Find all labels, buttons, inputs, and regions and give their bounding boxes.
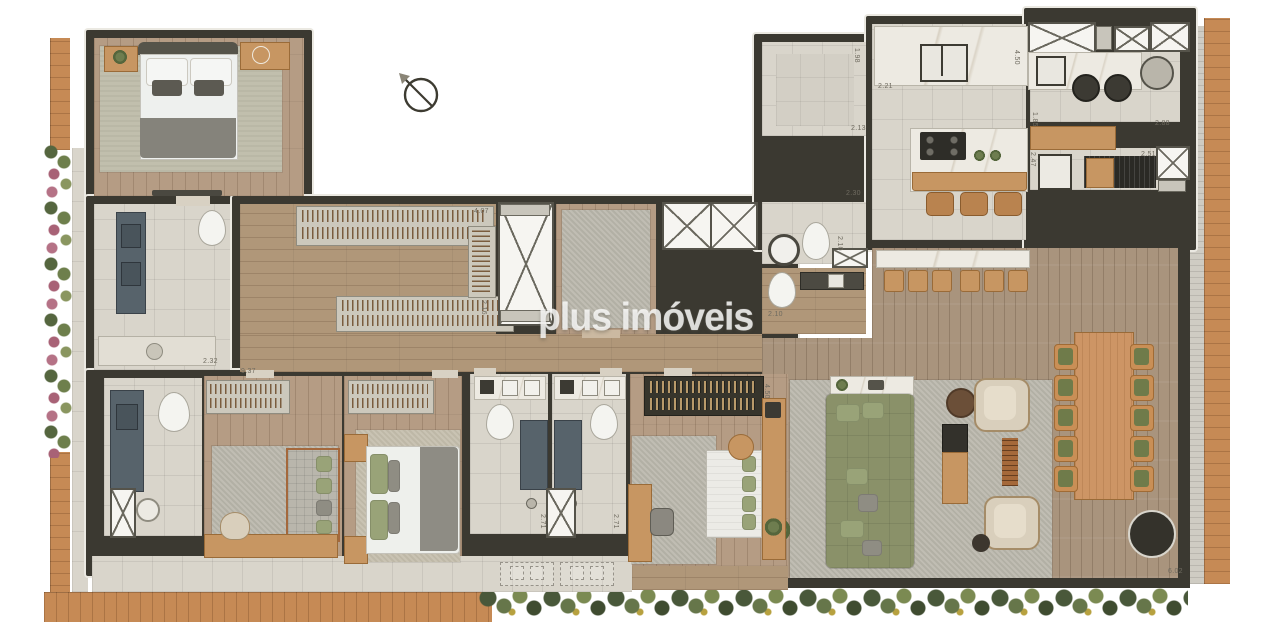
side-table-dark <box>972 534 990 552</box>
ghost-chair <box>530 566 544 580</box>
chair-cushion <box>1058 440 1073 457</box>
chair-cushion <box>1134 379 1149 396</box>
sink-basin <box>828 274 844 288</box>
daybed-pillow <box>742 496 756 512</box>
desk <box>628 484 652 562</box>
washbowl <box>136 498 160 522</box>
chair-cushion <box>1058 409 1073 426</box>
nightstand <box>344 434 368 462</box>
bed-pillow <box>388 460 400 492</box>
sink-basin <box>560 380 574 394</box>
ghost-chair <box>590 566 604 580</box>
dining-chair <box>1130 466 1154 492</box>
closet-hangers <box>210 384 284 394</box>
plant-pot <box>990 150 1001 161</box>
wood-frame-left-bottom <box>50 452 70 598</box>
shaft-cap <box>1096 26 1112 50</box>
armchair-cushion <box>994 504 1026 538</box>
dining-chair <box>1130 344 1154 370</box>
watermark: plus imóveis <box>538 296 788 340</box>
shower-door <box>110 488 136 538</box>
washbowl <box>768 234 800 266</box>
dining-chair <box>1054 466 1078 492</box>
plant-pot <box>836 379 848 391</box>
floor-vestibule-recess <box>776 54 854 126</box>
door-bedroom-1 <box>246 370 274 378</box>
duct-shaft <box>832 248 868 268</box>
closet-hangers <box>210 398 284 408</box>
duct-shaft <box>1156 146 1190 180</box>
decor-clock <box>252 46 270 64</box>
dining-chair <box>1054 405 1078 431</box>
closet-hangers <box>352 384 428 394</box>
sink-basin <box>604 380 620 396</box>
toilet <box>198 210 226 246</box>
daybed-pillow <box>316 500 332 516</box>
closet-hangers <box>302 227 486 239</box>
north-compass-icon <box>390 64 446 120</box>
island-base <box>912 172 1027 191</box>
sink-basin <box>121 224 141 248</box>
bar-stool <box>926 192 954 216</box>
wood-frame-bottom <box>44 592 492 622</box>
sofa-cushion <box>836 404 860 422</box>
sink-basin <box>116 404 138 430</box>
bar-stool <box>960 192 988 216</box>
closet-hangers <box>302 210 486 222</box>
shower-counter <box>520 420 548 490</box>
washer <box>1072 74 1100 102</box>
dining-chair <box>1054 436 1078 462</box>
daybed-pillow <box>316 478 332 494</box>
slat-bench <box>1002 438 1018 486</box>
chair-cushion <box>1134 409 1149 426</box>
sink-basin <box>582 380 598 396</box>
sofa-cushion <box>862 540 882 556</box>
elevator-cap <box>500 204 550 216</box>
closet-hangers <box>342 315 506 326</box>
stair-shaft <box>1028 22 1096 54</box>
breakfast-chair <box>984 270 1004 292</box>
sink-basin <box>480 380 494 394</box>
chair-cushion <box>1134 470 1149 487</box>
gourmet-sink <box>1038 154 1072 190</box>
door-bathroom-2 <box>474 368 496 376</box>
decor-tray <box>868 380 884 390</box>
bed-bench <box>152 190 222 196</box>
pouf <box>1128 510 1176 558</box>
bed-blanket <box>420 447 458 551</box>
door-bedroom-2 <box>432 370 458 378</box>
sink-basin <box>502 380 518 396</box>
shower-counter <box>554 420 582 490</box>
duct-shaft <box>1114 26 1150 52</box>
chair-cushion <box>1058 470 1073 487</box>
door-bedroom-3 <box>664 368 692 376</box>
duct-shaft <box>546 488 576 538</box>
cooktop <box>920 132 966 160</box>
speaker <box>765 402 781 418</box>
shower-drain <box>146 343 163 360</box>
elevator-shaft <box>1150 22 1190 52</box>
coffee-table-round <box>946 388 976 418</box>
vent-grate <box>1158 180 1186 192</box>
desk-chair <box>220 512 250 540</box>
toilet <box>802 222 830 260</box>
side-table-round <box>728 434 754 460</box>
bed-pillow <box>370 500 388 540</box>
daybed-pillow <box>316 456 332 472</box>
door-master-bath <box>176 196 210 206</box>
plant-pot <box>113 50 127 64</box>
dining-table <box>1074 332 1134 500</box>
daybed-pillow <box>742 514 756 530</box>
master-bed-cushion <box>152 80 182 96</box>
closet-hangers <box>342 300 506 311</box>
chair-cushion <box>1134 348 1149 365</box>
chair-cushion <box>1058 379 1073 396</box>
nightstand <box>344 536 368 564</box>
dining-chair <box>1130 436 1154 462</box>
door-bathroom-3 <box>600 368 622 376</box>
sofa-cushion <box>862 402 884 419</box>
breakfast-chair <box>884 270 904 292</box>
elevator-shaft <box>662 202 712 250</box>
wall-terrace-right <box>1178 244 1190 588</box>
dining-chair <box>1130 405 1154 431</box>
ghost-table <box>560 562 614 586</box>
kitchen-sink-divider <box>941 46 943 76</box>
chair-cushion <box>1058 348 1073 365</box>
floor-bedroom3-deck <box>632 566 788 590</box>
toilet <box>486 404 514 440</box>
breakfast-chair <box>1008 270 1028 292</box>
elevator-shaft <box>710 202 758 250</box>
kitchen-sink <box>920 44 968 82</box>
armchair-cushion <box>984 386 1016 420</box>
wood-frame-left-top <box>50 38 70 150</box>
tv-console <box>942 424 968 454</box>
vertical-garden-left <box>42 144 74 458</box>
dining-chair <box>1130 375 1154 401</box>
toilet <box>158 392 190 432</box>
chair-cushion <box>1134 440 1149 457</box>
books-row <box>650 381 756 393</box>
books-row <box>650 398 756 410</box>
bed-pillow <box>370 454 388 494</box>
breakfast-chair <box>932 270 952 292</box>
laundry-sink <box>1036 56 1066 86</box>
gourmet-counter <box>1030 126 1116 150</box>
plant-pot <box>974 150 985 161</box>
ghost-table <box>500 562 554 586</box>
plant-pot <box>765 518 782 536</box>
buffet-counter <box>876 250 1030 268</box>
daybed-pillow <box>316 520 332 534</box>
breakfast-chair <box>908 270 928 292</box>
breakfast-chair <box>960 270 980 292</box>
floor-plan: 4.072.169.372.322.302.131.982.214.501.85… <box>0 0 1280 640</box>
water-tank <box>1140 56 1174 90</box>
closet-hangers <box>472 230 490 292</box>
master-bed-cushion <box>194 80 224 96</box>
wood-frame-right <box>1204 18 1230 584</box>
closet-hangers <box>352 398 428 408</box>
ghost-chair <box>570 566 584 580</box>
washer <box>1104 74 1132 102</box>
bed-pillow <box>388 502 400 534</box>
toilet <box>590 404 618 440</box>
console-base <box>942 452 968 504</box>
sink-basin <box>121 262 141 286</box>
bar-stool <box>994 192 1022 216</box>
dining-chair <box>1054 344 1078 370</box>
sink-basin <box>524 380 540 396</box>
desk-chair <box>650 508 674 536</box>
sofa-cushion <box>846 468 868 485</box>
cutting-board <box>1086 158 1114 188</box>
master-bed-blanket <box>140 118 236 158</box>
dining-chair <box>1054 375 1078 401</box>
sofa-cushion <box>840 520 864 538</box>
sofa-cushion <box>858 494 878 512</box>
ghost-chair <box>510 566 524 580</box>
daybed-pillow <box>742 476 756 492</box>
faucet <box>526 498 537 509</box>
